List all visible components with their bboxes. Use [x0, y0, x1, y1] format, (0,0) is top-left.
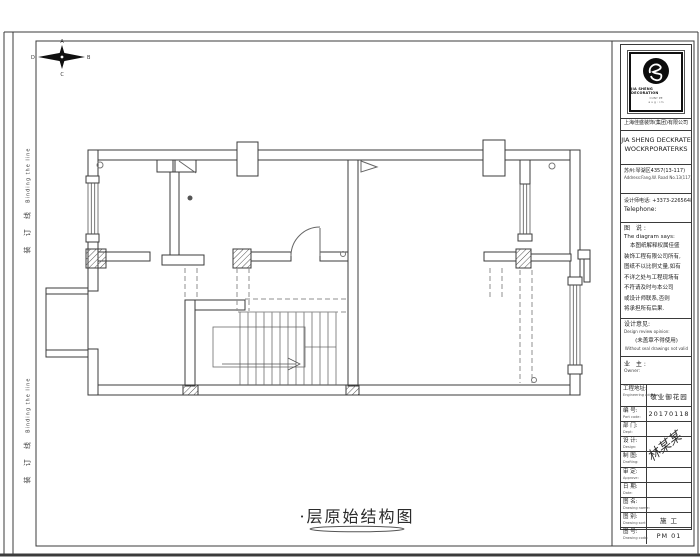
- table-row: 图 名:Drawing name:: [621, 498, 691, 513]
- phone-section: 设计师电话: +3373-2265648 Telephone:: [621, 194, 691, 223]
- sheet-linework: A B C D: [0, 0, 700, 560]
- logo-section: JIA SHENG DECORATION CUNY PE a u g : i m: [621, 45, 691, 119]
- walls: [88, 140, 590, 395]
- company-logo: JIA SHENG DECORATION CUNY PE a u g : i m: [629, 52, 683, 112]
- wall-step: [578, 250, 590, 259]
- duct-left: [237, 142, 258, 176]
- address-section: 苏州:琴湖区4357(13-117) Address:Fang.W. Road …: [621, 165, 691, 194]
- company-name-cn: 上海佳盛装饰(集团)有限公司: [621, 119, 691, 127]
- stamp-warning: (未盖章不得使用): [624, 337, 689, 346]
- address-en: Address:Fang.W. Road No.13(117): [624, 175, 689, 181]
- table-row: 图 别:Drawing sort: 施 工: [621, 513, 691, 528]
- phone-en: Telephone:: [624, 205, 689, 214]
- table-row: 编 号:Part code: 20170118: [621, 407, 691, 422]
- drawing-number-value: PM 01: [647, 528, 691, 544]
- company-name-cn-row: 上海佳盛装饰(集团)有限公司: [621, 119, 691, 131]
- compass-icon: A B C D: [31, 39, 91, 78]
- binding-line-label-bottom: 装 订 线 Binding the line: [15, 371, 34, 491]
- binding-en: Binding the line: [26, 148, 32, 203]
- title-block: JIA SHENG DECORATION CUNY PE a u g : i m…: [620, 44, 692, 530]
- address-cn: 苏州:琴湖区4357(13-117): [624, 168, 689, 175]
- logo-mark-icon: [641, 57, 671, 87]
- notes-title-en: The diagram says:: [624, 233, 689, 241]
- doors: [179, 161, 377, 256]
- table-row: 审 定:Approve:: [621, 468, 691, 483]
- table-row: 工程地址:Engineering address: 敬业御花园: [621, 385, 691, 407]
- titleblock-table: 工程地址:Engineering address: 敬业御花园 编 号:Part…: [621, 385, 691, 543]
- table-row: 日 期:Date:: [621, 483, 691, 498]
- company-name-en: JIA SHENG DECKRATE WOCKRPORATERKS: [621, 131, 691, 165]
- project-address-value: 敬业御花园: [647, 385, 691, 406]
- sheet-title: ·层原始结构图: [257, 503, 457, 527]
- title-underline: [310, 526, 404, 532]
- floor-plan: [46, 140, 590, 395]
- windows: [88, 183, 580, 365]
- phone-cn: 设计师电话: +3373-2265648: [624, 197, 689, 205]
- table-row: 图 号:Drawing code: PM 01: [621, 528, 691, 544]
- staircase: [213, 312, 336, 385]
- design-opinion-section: 设计意见: Design review opinion: (未盖章不得使用) W…: [621, 319, 691, 357]
- drawing-sheet: A B C D: [0, 0, 700, 560]
- bay-window: [46, 288, 88, 357]
- ceiling-light-dot: [188, 196, 193, 201]
- fixture-markers: [97, 162, 555, 383]
- door-swing-arc: [291, 227, 320, 256]
- logo-name: JIA SHENG DECORATION: [631, 87, 681, 96]
- compass-s-label: C: [60, 72, 64, 78]
- binding-cn: 装 订 线: [24, 208, 32, 253]
- compass-e-label: B: [87, 55, 91, 61]
- notes-section: 图 说: The diagram says: 本图纸解释权属佳盛 装饰工程有限公…: [621, 223, 691, 319]
- columns: [86, 249, 531, 395]
- compass-n-label: A: [60, 39, 64, 45]
- binding-line-label-top: 装 订 线 Binding the line: [15, 141, 34, 261]
- notes-title-cn: 图 说:: [624, 225, 689, 233]
- door-flag: [361, 161, 377, 172]
- duct-right: [483, 140, 505, 176]
- compass-w-label: D: [31, 55, 35, 61]
- drawing-frame: [36, 41, 694, 546]
- stair-rail: [213, 327, 305, 367]
- drawing-sort-value: 施 工: [647, 513, 691, 527]
- owner-section: 业 主: Owner:: [621, 357, 691, 385]
- table-row: 设 计:Design:: [621, 437, 691, 452]
- window-sills: [86, 176, 582, 374]
- table-row: 部 门:Dept:: [621, 422, 691, 437]
- table-row: 制 图:Drafting:: [621, 452, 691, 468]
- part-code-value: 20170118: [647, 407, 691, 421]
